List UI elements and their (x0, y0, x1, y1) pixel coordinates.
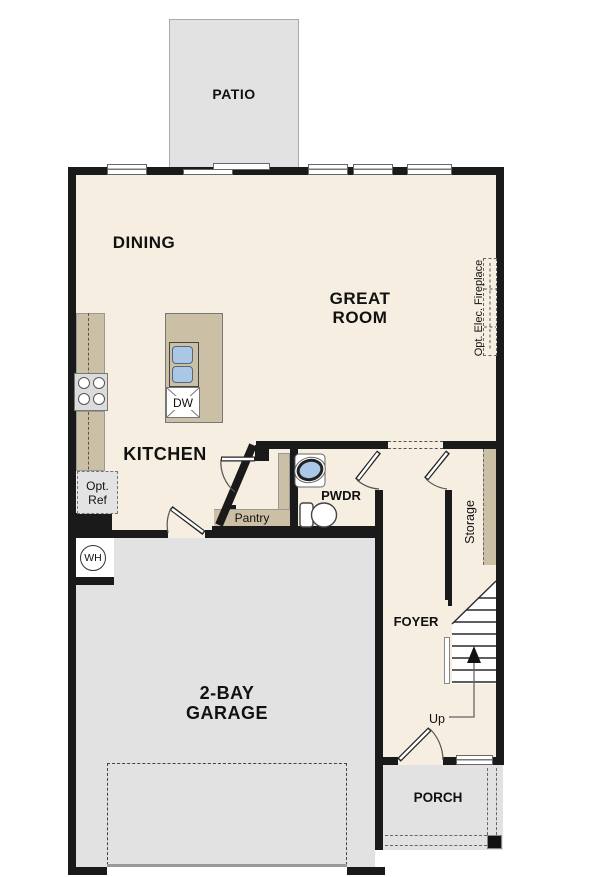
burner-3 (78, 393, 90, 405)
dining-label: DINING (84, 233, 204, 253)
porch-label: PORCH (398, 790, 478, 805)
patio-label: PATIO (169, 86, 299, 102)
burner-2 (93, 377, 105, 389)
wall-powder-west (290, 449, 298, 528)
wall-greatroom-south-left (256, 441, 388, 449)
great-room-label: GREAT ROOM (300, 289, 420, 327)
window-dining (107, 164, 147, 175)
wall-porch-west (375, 765, 383, 850)
window-great-1 (308, 164, 348, 175)
counter-upper (76, 313, 105, 374)
garage-door-dashed (107, 763, 347, 865)
powder-label: PWDR (311, 488, 371, 503)
stairs-body (452, 580, 496, 684)
up-label: Up (424, 712, 450, 726)
wall-kitchen-south-left (68, 530, 168, 538)
great-room-label-line2: ROOM (333, 308, 388, 327)
kitchen-label: KITCHEN (105, 444, 225, 465)
storage-shelf (483, 449, 496, 565)
window-great-2 (353, 164, 393, 175)
foyer-label: FOYER (386, 614, 446, 629)
wall-greatroom-south-right (443, 441, 496, 449)
main-floor (76, 175, 496, 449)
burner-1 (78, 377, 90, 389)
burner-4 (93, 393, 105, 405)
dishwasher-label: DW (169, 396, 197, 410)
patio-slider-right (213, 163, 270, 170)
fireplace-label: Opt. Elec. Fireplace (468, 258, 490, 358)
wall-storage-west (445, 490, 452, 600)
stairs-rail (444, 637, 450, 684)
wall-pantry-hinge-cap (255, 445, 269, 461)
wall-foyer-south-b (443, 757, 456, 765)
water-heater-wall (76, 577, 114, 585)
water-heater-label: WH (84, 552, 102, 564)
garage-label-line1: 2-BAY (200, 683, 255, 703)
window-front (456, 755, 493, 765)
water-heater-circle: WH (80, 545, 106, 571)
garage-label: 2-BAY GARAGE (167, 683, 287, 723)
garage-door-threshold (107, 864, 347, 867)
wall-corner-block (71, 513, 112, 530)
sink-basin-bottom (172, 366, 193, 383)
optional-fridge-label-2: Ref (88, 493, 107, 507)
front-doorway-floor (398, 757, 443, 765)
great-room-label-line1: GREAT (330, 289, 391, 308)
optional-fridge-label-1: Opt. (86, 479, 109, 493)
pantry-shelf-east (278, 453, 290, 514)
storage-label: Storage (458, 494, 482, 550)
wall-garage-south-right (347, 867, 385, 875)
window-great-3 (407, 164, 452, 175)
porch-dash-vertical (487, 768, 497, 835)
counter-lower (76, 411, 105, 471)
garage-doorway-floor (168, 530, 205, 538)
porch-post (487, 835, 502, 849)
wall-garage-south-left (68, 867, 107, 875)
sink-basin-top (172, 346, 193, 364)
cased-opening (388, 441, 443, 449)
wall-pantry-south (212, 526, 383, 538)
garage-label-line2: GARAGE (186, 703, 268, 723)
wall-east (496, 167, 504, 765)
porch-dash-horizontal (385, 835, 487, 846)
pantry-label: Pantry (215, 511, 289, 525)
optional-fridge: Opt. Ref (77, 471, 118, 514)
powder-doorway-floor (375, 449, 383, 490)
floor-plan: Opt. Ref WH (0, 0, 601, 877)
wall-foyer-south-c (493, 757, 504, 765)
